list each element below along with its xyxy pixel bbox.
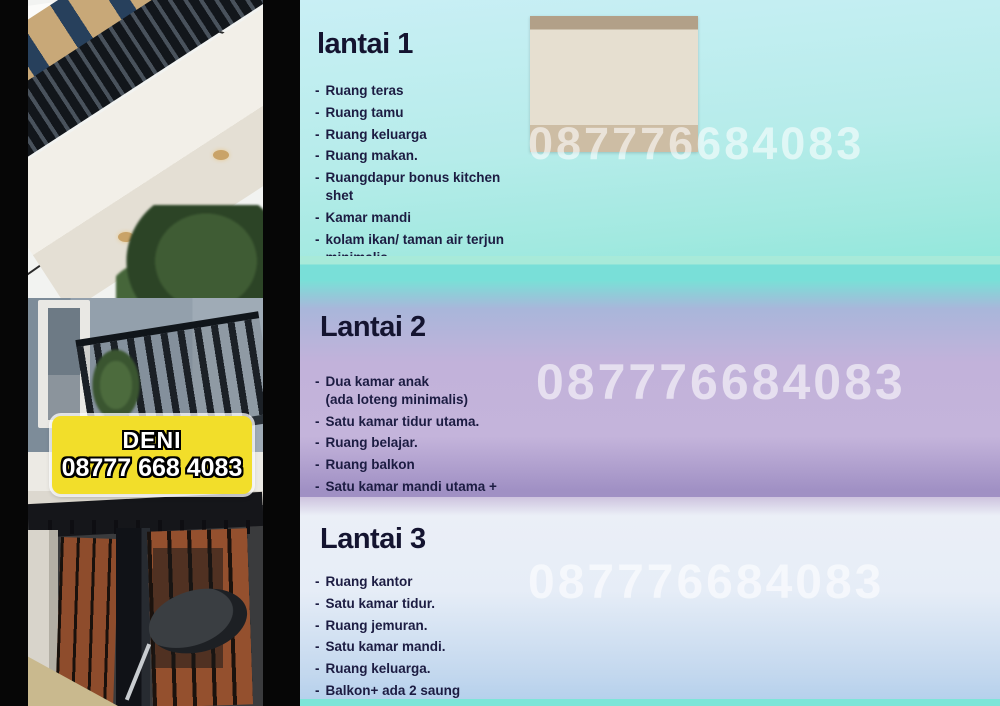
list-item: -Ruangdapur bonus kitchen shet [315,169,527,205]
bullet-dash: - [315,638,320,656]
bullet-dash: - [315,126,320,144]
item-text: Satu kamar mandi utama + Bathup. [326,478,528,497]
list-item: -Dua kamar anak (ada loteng minimalis) [315,373,527,409]
item-text: Kamar mandi [326,209,412,227]
section-lantai-3: Lantai 3 -Ruang kantor -Satu kamar tidur… [300,497,1000,706]
house-exterior-photo: DENI 08777 668 4083 [28,0,263,706]
bullet-dash: - [315,595,320,613]
phone-watermark: 087776684083 [536,353,906,411]
list-item: -Ruang balkon [315,456,527,474]
phone-watermark: 087776684083 [528,555,884,610]
section-lantai-1: lantai 1 -Ruang teras -Ruang tamu -Ruang… [300,0,1000,281]
photo-entrance-double-door [530,16,698,152]
item-text: Ruang keluarga [326,126,427,144]
item-text: Ruang kantor [326,573,413,591]
section-lantai-2: Lantai 2 -Dua kamar anak (ada loteng min… [300,281,1000,497]
list-item: -Ruang belajar. [315,434,527,452]
left-photo-column: DENI 08777 668 4083 [0,0,300,706]
bullet-dash: - [315,209,320,227]
feature-list-lantai-2: -Dua kamar anak (ada loteng minimalis) -… [315,373,527,497]
feature-list-lantai-1: -Ruang teras -Ruang tamu -Ruang keluarga… [315,82,527,281]
list-item: -Ruang tamu [315,104,527,122]
bullet-dash: - [315,573,320,591]
list-item: -Ruang makan. [315,147,527,165]
list-item: -Ruang kantor [315,573,527,591]
list-item: -Satu kamar mandi. [315,638,527,656]
list-item: -Ruang keluarga [315,126,527,144]
bullet-dash: - [315,478,320,497]
bullet-dash: - [315,413,320,431]
contact-badge: DENI 08777 668 4083 [52,416,252,494]
item-text: Dua kamar anak (ada loteng minimalis) [326,373,469,409]
bullet-dash: - [315,373,320,409]
section-title: Lantai 2 [320,311,426,344]
bullet-dash: - [315,104,320,122]
item-text: Ruang belajar. [326,434,418,452]
list-item: -Satu kamar tidur. [315,595,527,613]
list-item: -Ruang teras [315,82,527,100]
item-text: Ruang keluarga. [326,660,431,678]
teal-bottom-strip [300,699,1000,706]
section-title: lantai 1 [317,28,413,61]
item-text: Ruang makan. [326,147,418,165]
door [585,31,642,126]
bullet-dash: - [315,660,320,678]
contact-name: DENI [123,428,182,454]
list-item: -Ruang keluarga. [315,660,527,678]
contact-phone: 08777 668 4083 [62,454,243,482]
item-text: Ruang teras [326,82,404,100]
item-text: Ruang balkon [326,456,415,474]
teal-divider-band [300,256,1000,281]
item-text: Satu kamar tidur utama. [326,413,480,431]
window-glass [48,308,80,420]
item-text: Satu kamar tidur. [326,595,436,613]
list-item: -Kamar mandi [315,209,527,227]
downlight [213,150,229,160]
bullet-dash: - [315,147,320,165]
item-text: Ruang jemuran. [326,617,428,635]
item-text: Satu kamar mandi. [326,638,446,656]
bullet-dash: - [315,617,320,635]
item-text: Ruangdapur bonus kitchen shet [326,169,528,205]
bullet-dash: - [315,82,320,100]
feature-list-lantai-3: -Ruang kantor -Satu kamar tidur. -Ruang … [315,573,527,706]
list-item: -Satu kamar mandi utama + Bathup. [315,478,527,497]
section-title: Lantai 3 [320,523,426,556]
bullet-dash: - [315,456,320,474]
item-text: Ruang tamu [326,104,404,122]
bullet-dash: - [315,169,320,205]
list-item: -Satu kamar tidur utama. [315,413,527,431]
list-item: -Ruang jemuran. [315,617,527,635]
floors-panel: lantai 1 -Ruang teras -Ruang tamu -Ruang… [300,0,1000,706]
real-estate-flyer: DENI 08777 668 4083 lantai 1 -Ruang tera… [0,0,1000,706]
bullet-dash: - [315,434,320,452]
